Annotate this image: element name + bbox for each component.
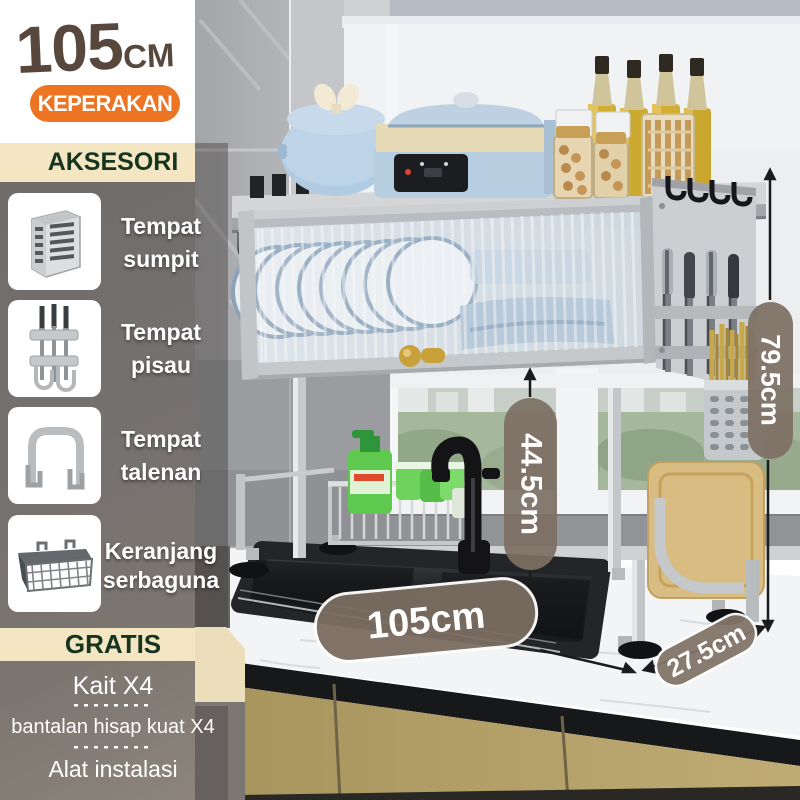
svg-text:44.5cm: 44.5cm <box>515 433 548 535</box>
svg-text:79.5cm: 79.5cm <box>756 334 786 426</box>
